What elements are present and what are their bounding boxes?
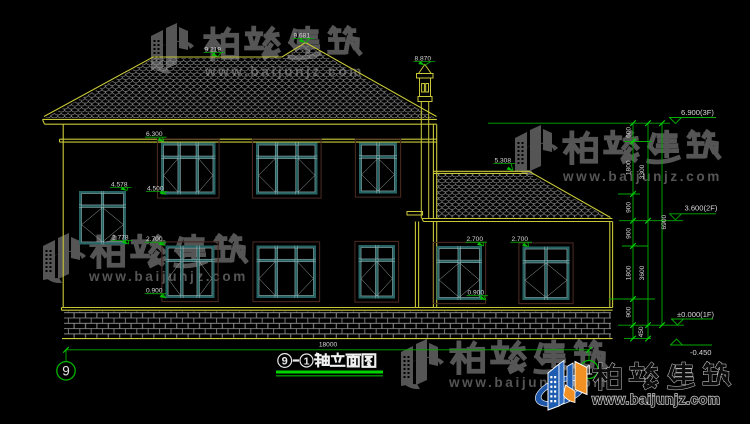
svg-text:3.600(2F): 3.600(2F) [685,204,718,213]
svg-text:±0.000(1F): ±0.000(1F) [677,310,715,319]
svg-text:900: 900 [626,202,633,213]
svg-text:9: 9 [62,364,70,379]
svg-text:1: 1 [304,355,310,367]
svg-text:3600: 3600 [639,265,646,280]
svg-text:www.baijunjz.com: www.baijunjz.com [591,392,721,407]
svg-text:3300: 3300 [639,164,646,179]
svg-text:450: 450 [638,326,645,337]
svg-text:900: 900 [626,306,633,317]
svg-text:1800: 1800 [626,160,633,175]
svg-text:6900: 6900 [661,215,668,230]
svg-text:1800: 1800 [626,265,633,280]
svg-text:600: 600 [626,127,633,138]
svg-text:-0.450: -0.450 [690,348,712,357]
svg-text:18000: 18000 [319,342,338,349]
svg-text:900: 900 [626,228,633,239]
svg-text:6.900(3F): 6.900(3F) [681,108,714,117]
svg-text:9: 9 [282,356,288,368]
